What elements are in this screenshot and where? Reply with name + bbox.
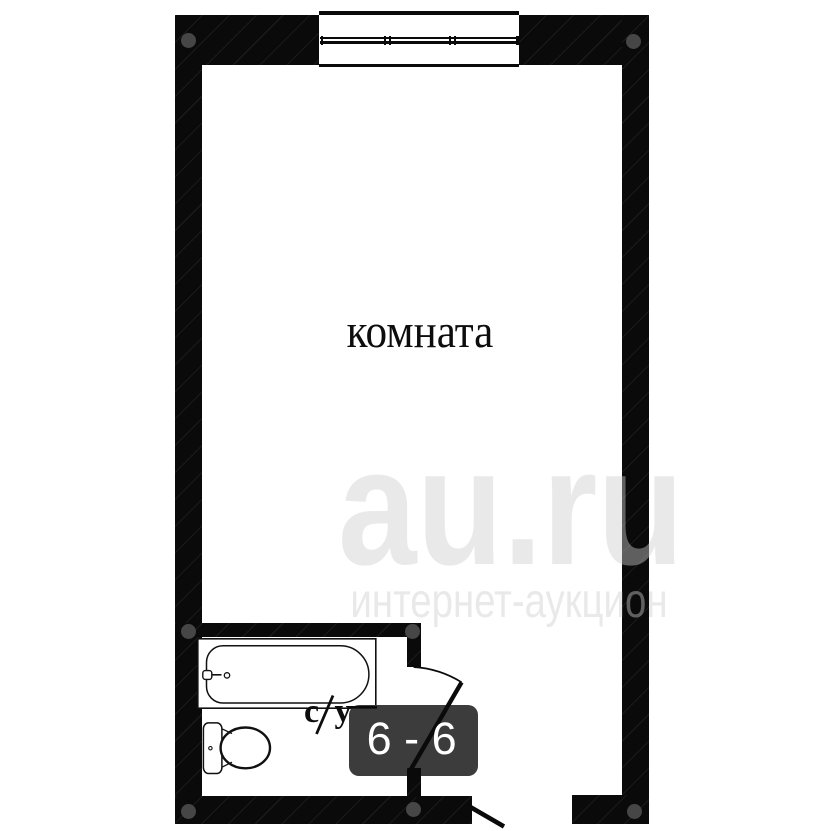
- svg-text:с: с: [304, 693, 319, 730]
